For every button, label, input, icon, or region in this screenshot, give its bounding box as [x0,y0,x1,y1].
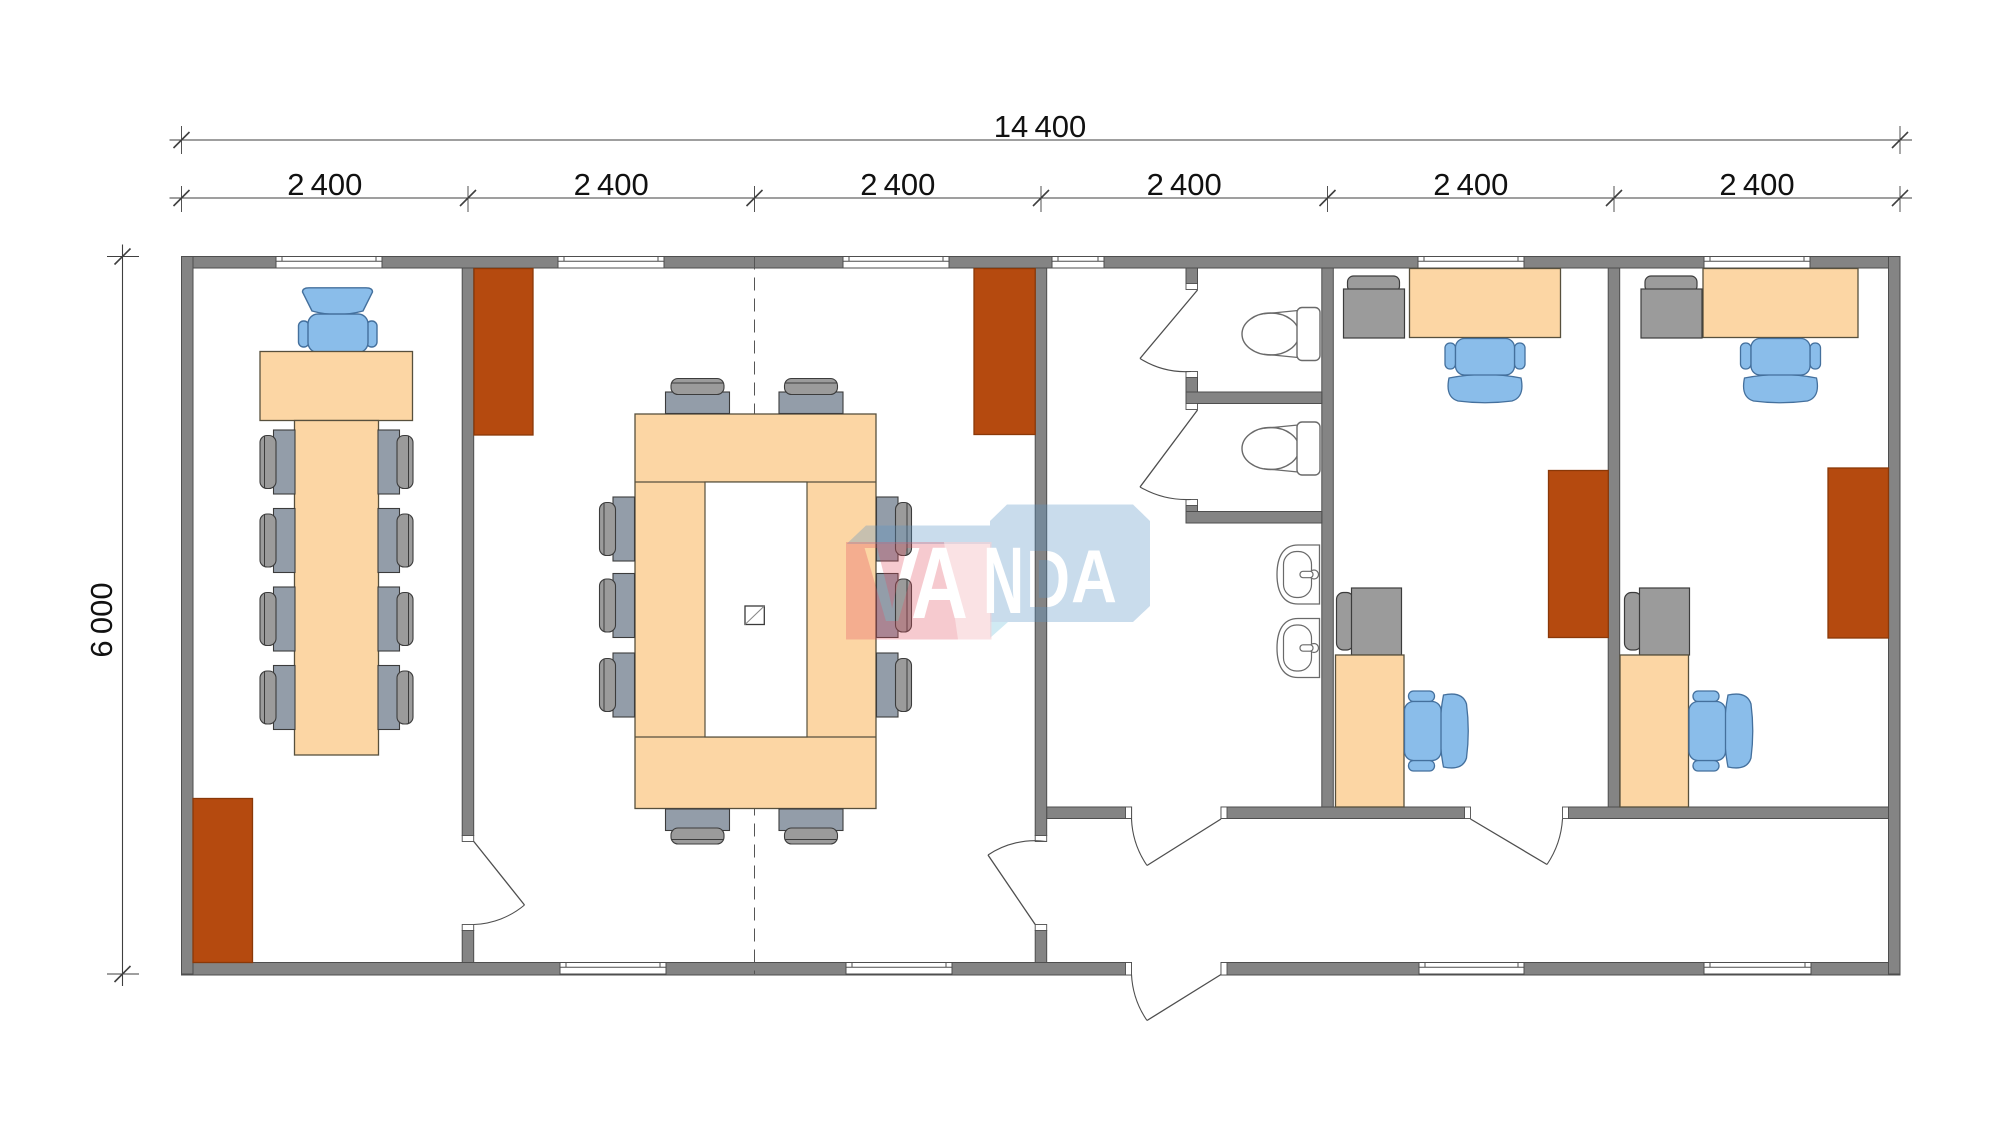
svg-text:2 400: 2 400 [1147,167,1222,202]
svg-text:2 400: 2 400 [574,167,649,202]
svg-text:2 400: 2 400 [1433,167,1508,202]
svg-text:14 400: 14 400 [994,109,1086,144]
svg-text:6 000: 6 000 [84,582,119,657]
svg-text:2 400: 2 400 [860,167,935,202]
svg-text:2 400: 2 400 [1719,167,1794,202]
svg-text:2 400: 2 400 [287,167,362,202]
